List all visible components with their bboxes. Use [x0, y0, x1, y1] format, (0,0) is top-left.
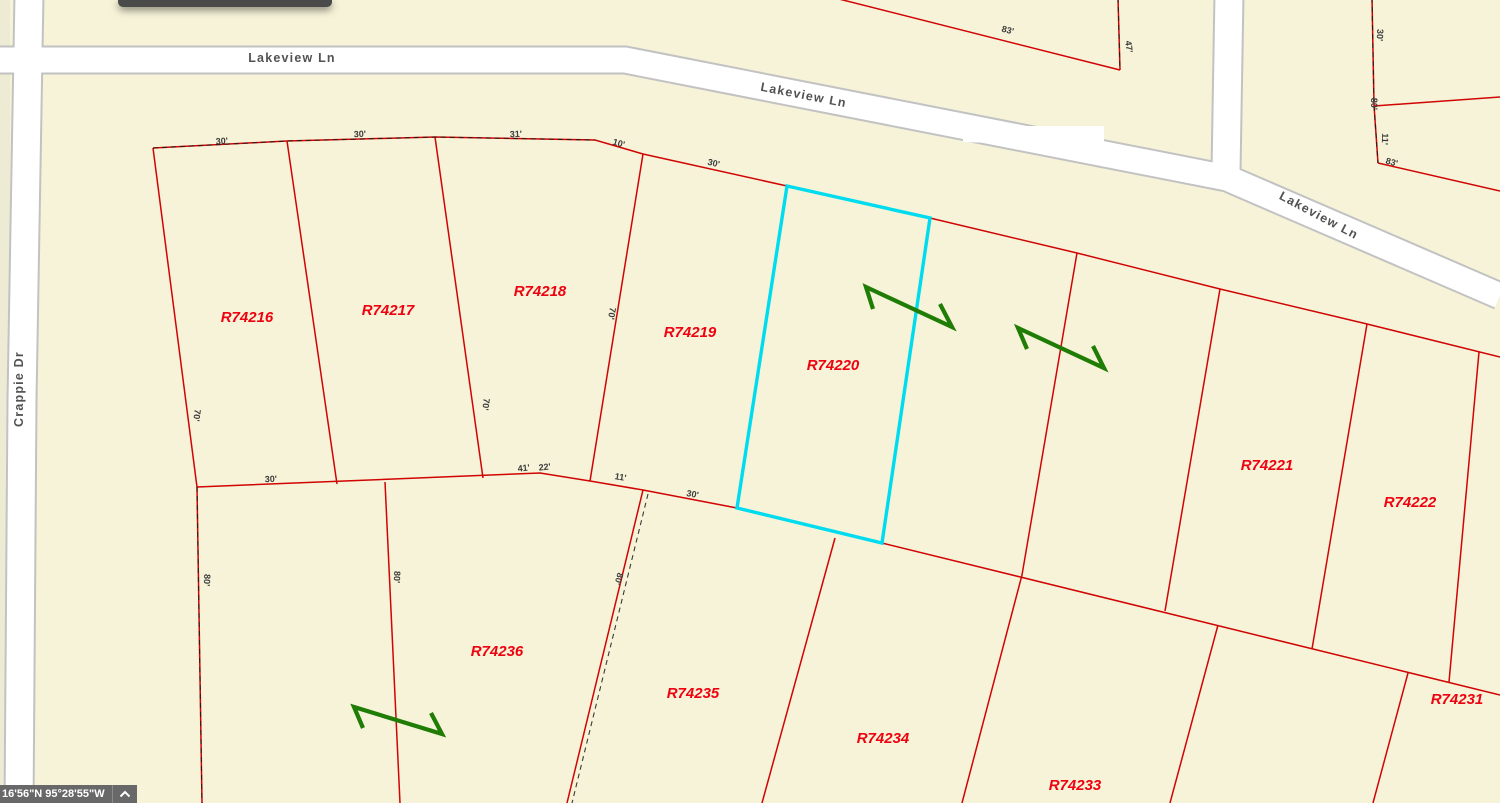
road-branch	[1226, 0, 1229, 172]
chevron-up-icon	[119, 790, 131, 798]
dimension-label: 70'	[606, 307, 618, 321]
street-label-lakeview-ln: Lakeview Ln	[248, 51, 336, 65]
street-label-crappie-dr: Crappie Dr	[12, 351, 26, 427]
dimension-label: 22'	[538, 461, 551, 472]
parcel-label-R74233[interactable]: R74233	[1049, 777, 1102, 794]
parcel-label-R74216[interactable]: R74216	[221, 309, 274, 326]
parcel-label-R74220[interactable]: R74220	[807, 357, 860, 374]
coordinate-readout: 16'56"N 95°28'55"W	[2, 788, 112, 801]
dimension-label: 70'	[191, 409, 202, 422]
dimension-label: 11'	[1380, 133, 1391, 145]
dimension-label: 70'	[480, 398, 491, 411]
dimension-label: 80'	[392, 571, 402, 583]
top-overlay-bar	[118, 0, 332, 7]
dimension-label: 30'	[1375, 29, 1385, 41]
dimension-label: 30'	[216, 136, 229, 147]
map-canvas[interactable]: 30'30'31'10'30'70'70'70'30'41'22'11'30'8…	[0, 0, 1500, 803]
parcel-label-R74234[interactable]: R74234	[857, 730, 910, 747]
dimension-label: 80'	[1369, 98, 1379, 110]
parcel-label-R74236[interactable]: R74236	[471, 643, 524, 660]
expand-statusbar-button[interactable]	[112, 785, 137, 803]
map-background	[0, 0, 1500, 803]
parcel-map[interactable]: 30'30'31'10'30'70'70'70'30'41'22'11'30'8…	[0, 0, 1500, 803]
dimension-label: 41'	[517, 462, 530, 473]
dimension-label: 30'	[354, 129, 366, 139]
dimension-label: 31'	[510, 129, 522, 139]
parcel-label-R74222[interactable]: R74222	[1384, 494, 1437, 511]
coordinate-bar: 16'56"N 95°28'55"W	[0, 785, 137, 803]
dimension-label: 11'	[614, 471, 627, 483]
dimension-label: 80'	[202, 574, 213, 587]
parcel-label-R74235[interactable]: R74235	[667, 685, 720, 702]
dimension-label: 30'	[265, 474, 277, 484]
parcel-label-R74218[interactable]: R74218	[514, 283, 567, 300]
parcel-label-R74217[interactable]: R74217	[362, 302, 415, 319]
parcel-label-R74231[interactable]: R74231	[1431, 691, 1484, 708]
dimension-label: 47'	[1123, 40, 1134, 53]
parcel-label-R74221[interactable]: R74221	[1241, 457, 1294, 474]
parcel-label-R74219[interactable]: R74219	[664, 324, 717, 341]
